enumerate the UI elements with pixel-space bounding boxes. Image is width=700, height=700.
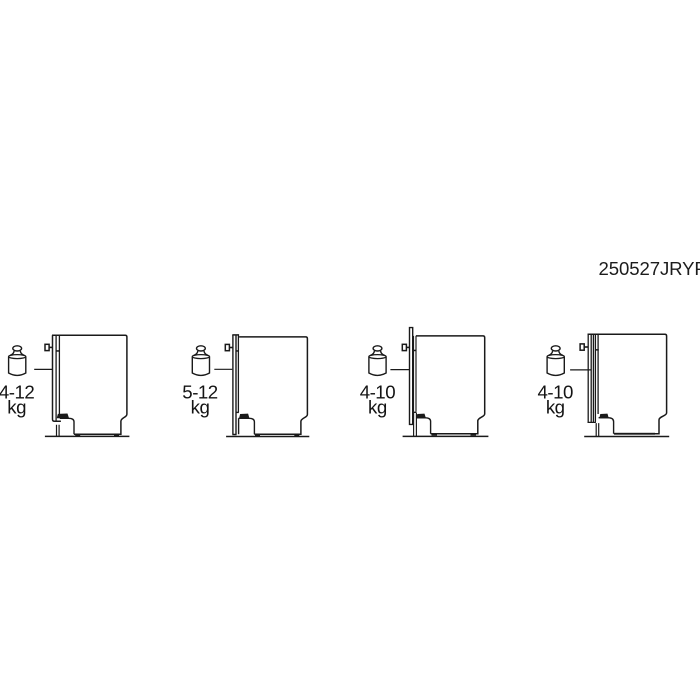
svg-text:kg: kg: [368, 397, 387, 418]
svg-text:250527JRYP: 250527JRYP: [599, 258, 700, 279]
svg-text:kg: kg: [546, 397, 565, 418]
svg-text:kg: kg: [7, 397, 26, 418]
svg-text:kg: kg: [191, 397, 210, 418]
